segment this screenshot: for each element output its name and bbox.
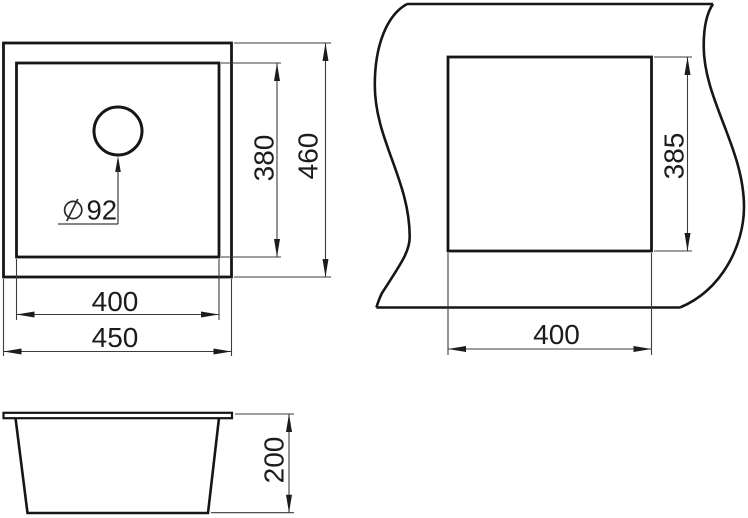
svg-text:460: 460 bbox=[293, 133, 324, 180]
svg-text:450: 450 bbox=[92, 322, 139, 353]
svg-text:385: 385 bbox=[659, 133, 690, 180]
svg-text:380: 380 bbox=[249, 135, 280, 182]
svg-text:92: 92 bbox=[87, 195, 118, 226]
svg-text:400: 400 bbox=[533, 319, 580, 350]
svg-text:400: 400 bbox=[92, 286, 139, 317]
svg-text:200: 200 bbox=[259, 437, 290, 484]
